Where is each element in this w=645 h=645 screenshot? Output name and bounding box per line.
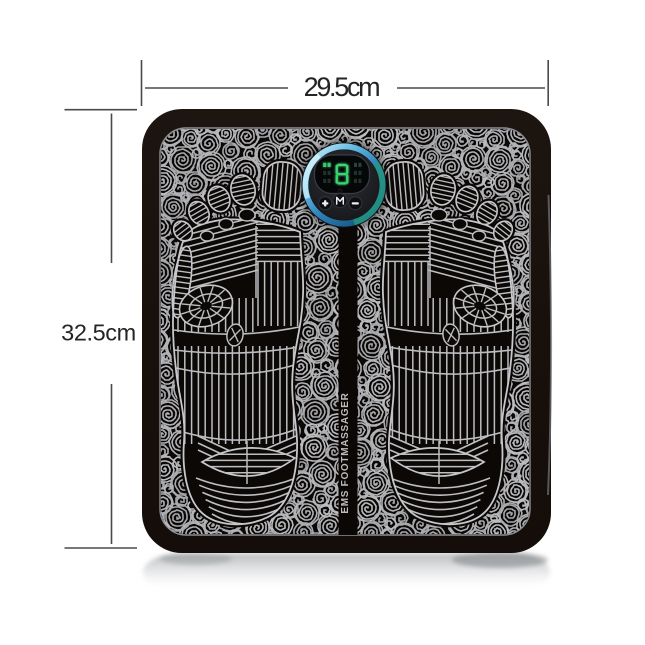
svg-text:29.5cm: 29.5cm (304, 72, 380, 102)
svg-text:32.5cm: 32.5cm (61, 320, 136, 346)
svg-text:EMS FOOTMASSAGER: EMS FOOTMASSAGER (340, 392, 351, 513)
